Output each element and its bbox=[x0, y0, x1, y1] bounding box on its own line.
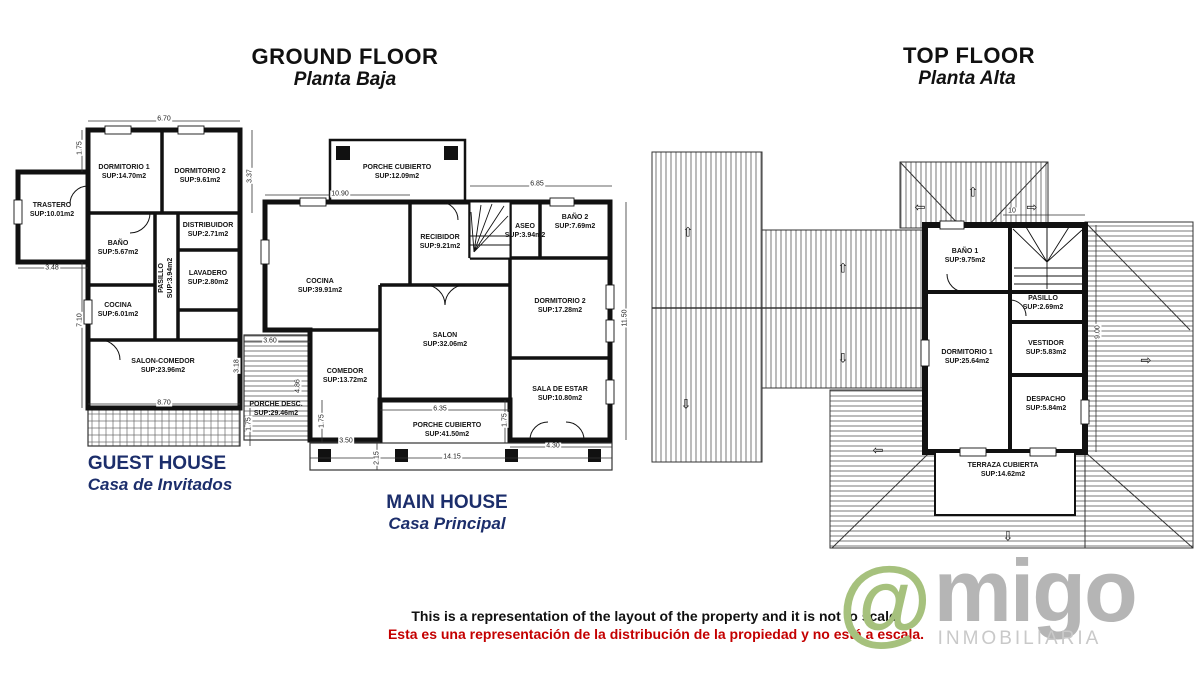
dimension-label: 4.86 bbox=[295, 378, 302, 394]
room-label-vestidor: VESTIDORSUP:5.83m2 bbox=[1026, 339, 1066, 357]
main-house-sublabel: Casa Principal bbox=[388, 514, 505, 534]
ground-floor-subtitle: Planta Baja bbox=[294, 69, 396, 91]
dimension-label: 1.75 bbox=[77, 140, 84, 156]
agency-logo: @ migo INMOBILIARIA bbox=[838, 556, 1198, 650]
room-label-porche-cubierto-bottom: PORCHE CUBIERTOSUP:41.50m2 bbox=[413, 421, 481, 439]
roof-arrow-up-icon: ⇧ bbox=[838, 262, 849, 275]
room-label-bano2: BAÑO 2SUP:7.69m2 bbox=[555, 213, 595, 231]
room-label-sala-de-estar: SALA DE ESTARSUP:10.80m2 bbox=[532, 385, 588, 403]
dimension-label: 7.10 bbox=[77, 312, 84, 328]
logo-name: migo bbox=[934, 556, 1136, 626]
room-label-despacho: DESPACHOSUP:5.84m2 bbox=[1026, 395, 1066, 413]
dimension-label: 1.75 bbox=[319, 413, 326, 429]
room-label-bano1-top: BAÑO 1SUP:9.75m2 bbox=[945, 247, 985, 265]
room-label-terraza-cubierta: TERRAZA CUBIERTASUP:14.62m2 bbox=[968, 461, 1039, 479]
dimension-label: 10 bbox=[1007, 208, 1017, 215]
dimension-label: 10.90 bbox=[330, 191, 350, 198]
room-label-cocina-guest: COCINASUP:6.01m2 bbox=[98, 301, 138, 319]
dimension-label: 9.00 bbox=[1095, 324, 1102, 340]
room-label-dormitorio1-guest: DORMITORIO 1SUP:14.70m2 bbox=[98, 163, 149, 181]
room-label-porche-cubierto-top: PORCHE CUBIERTOSUP:12.09m2 bbox=[363, 163, 431, 181]
dimension-label: 14.15 bbox=[442, 454, 462, 461]
room-label-porche-desc: PORCHE DESC.SUP:29.46m2 bbox=[249, 400, 302, 418]
roof-arrow-left-icon: ⇦ bbox=[873, 444, 884, 457]
dimension-label: 3.18 bbox=[234, 358, 241, 374]
logo-at-icon: @ bbox=[838, 556, 932, 647]
roof-arrow-left-icon: ⇦ bbox=[915, 201, 926, 214]
main-house-label: MAIN HOUSE bbox=[386, 492, 507, 514]
dimension-label: 3.60 bbox=[262, 338, 278, 345]
dimension-label: 3.37 bbox=[247, 168, 254, 184]
room-label-distribuidor: DISTRIBUIDORSUP:2.71m2 bbox=[183, 221, 234, 239]
dimension-label: 11.50 bbox=[622, 309, 629, 328]
dimension-label: 6.85 bbox=[529, 181, 545, 188]
dimension-label: 1.75 bbox=[502, 412, 509, 428]
room-label-lavadero: LAVADEROSUP:2.80m2 bbox=[188, 269, 228, 287]
top-floor-title: TOP FLOOR bbox=[903, 43, 1035, 69]
room-label-dormitorio1-top: DORMITORIO 1SUP:25.64m2 bbox=[941, 348, 992, 366]
dimension-label: 1.75 bbox=[246, 416, 253, 432]
dimension-label: 6.35 bbox=[432, 406, 448, 413]
room-label-bano-guest: BAÑOSUP:5.67m2 bbox=[98, 239, 138, 257]
dimension-label: 8.70 bbox=[156, 400, 172, 407]
dimension-label: 6.70 bbox=[156, 116, 172, 123]
room-label-cocina-main: COCINASUP:39.91m2 bbox=[298, 277, 342, 295]
roof-arrow-up-icon: ⇧ bbox=[683, 226, 694, 239]
room-label-salon-comedor: SALON-COMEDORSUP:23.96m2 bbox=[131, 357, 194, 375]
room-label-aseo: ASEOSUP:3.94m2 bbox=[505, 222, 545, 240]
room-label-dormitorio2-main: DORMITORIO 2SUP:17.28m2 bbox=[534, 297, 585, 315]
roof-arrow-right-icon: ⇨ bbox=[1141, 354, 1152, 367]
room-label-dormitorio2-guest: DORMITORIO 2SUP:9.61m2 bbox=[174, 167, 225, 185]
room-label-recibidor: RECIBIDORSUP:9.21m2 bbox=[420, 233, 460, 251]
roof-arrow-down-icon: ⇩ bbox=[681, 398, 692, 411]
room-label-trastero: TRASTEROSUP:10.01m2 bbox=[30, 201, 74, 219]
room-label-comedor: COMEDORSUP:13.72m2 bbox=[323, 367, 367, 385]
floor-plan-page: GROUND FLOOR Planta Baja TOP FLOOR Plant… bbox=[0, 0, 1200, 675]
guest-house-sublabel: Casa de Invitados bbox=[88, 475, 233, 495]
disclaimer-english: This is a representation of the layout o… bbox=[411, 608, 900, 624]
dimension-label: 3.50 bbox=[338, 438, 354, 445]
top-floor-subtitle: Planta Alta bbox=[918, 68, 1016, 90]
roof-arrow-down-icon: ⇩ bbox=[838, 352, 849, 365]
roof-arrow-up-icon: ⇧ bbox=[968, 186, 979, 199]
logo-subtitle: INMOBILIARIA bbox=[934, 628, 1136, 650]
dimension-label: 4.30 bbox=[545, 443, 561, 450]
room-label-pasillo-guest: PASILLOSUP:3.94m2 bbox=[157, 258, 175, 298]
dimension-label: 3.48 bbox=[44, 265, 60, 272]
roof-arrow-right-icon: ⇨ bbox=[1027, 201, 1038, 214]
room-label-pasillo-top: PASILLOSUP:2.69m2 bbox=[1023, 294, 1063, 312]
guest-house-label: GUEST HOUSE bbox=[88, 453, 226, 475]
ground-floor-title: GROUND FLOOR bbox=[252, 44, 439, 70]
dimension-label: 2.15 bbox=[374, 450, 381, 466]
room-label-salon: SALONSUP:32.06m2 bbox=[423, 331, 467, 349]
